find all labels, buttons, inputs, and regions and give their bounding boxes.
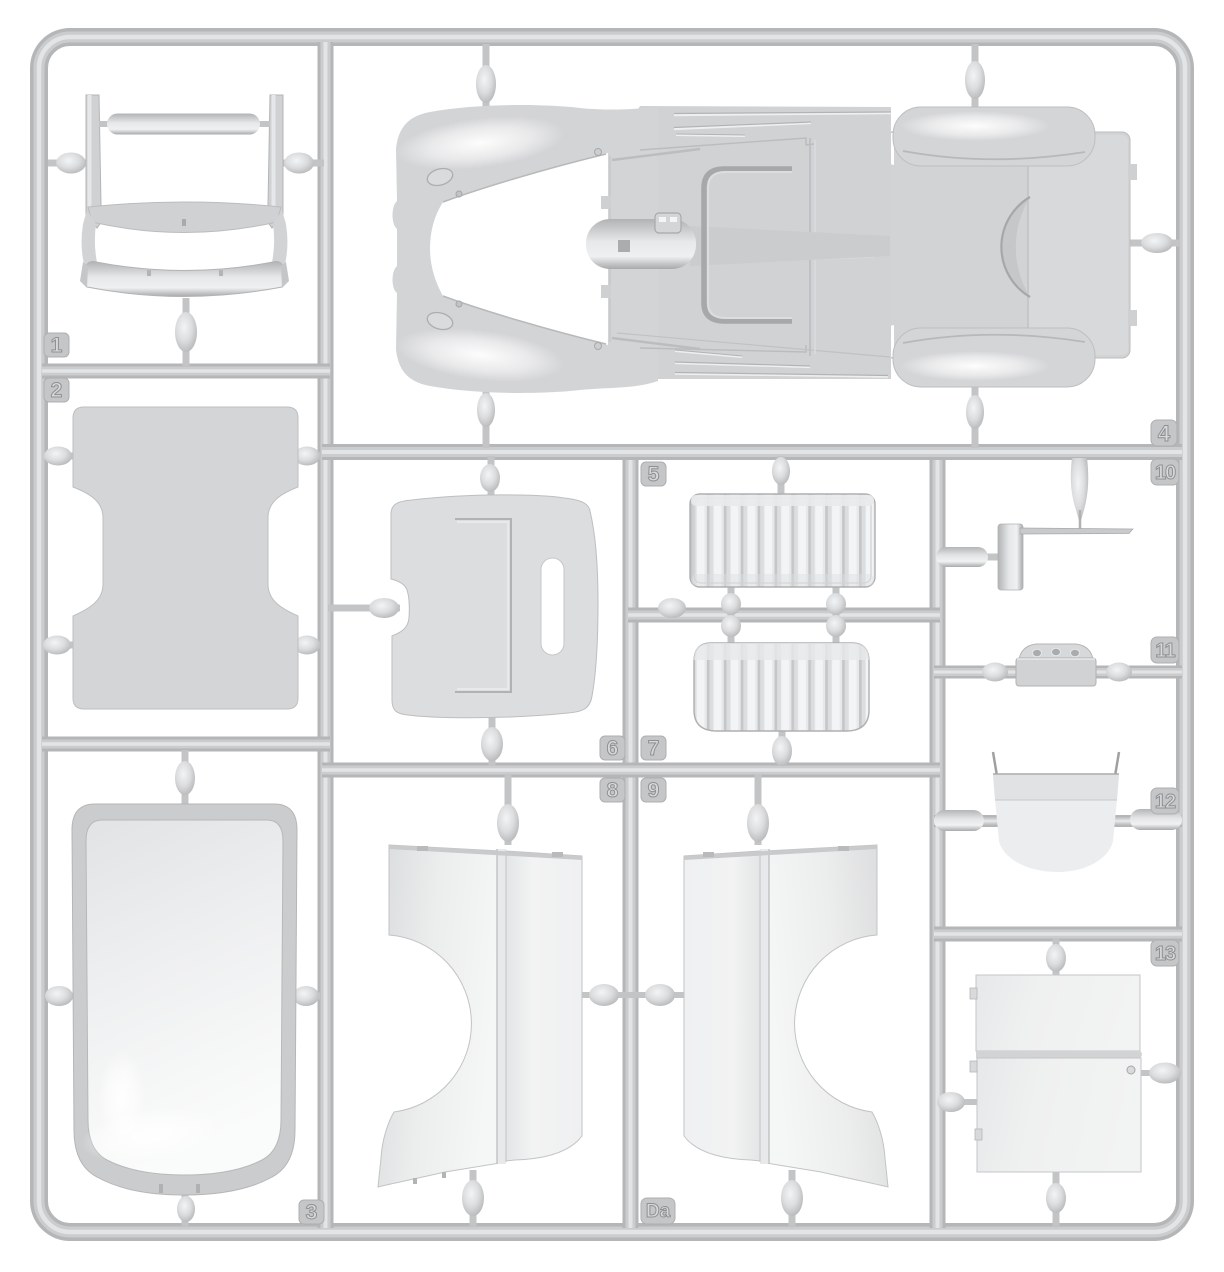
svg-text:13: 13 bbox=[1155, 943, 1176, 965]
svg-text:4: 4 bbox=[1158, 421, 1171, 446]
svg-text:12: 12 bbox=[1155, 791, 1176, 813]
svg-text:9: 9 bbox=[648, 779, 660, 802]
svg-text:2: 2 bbox=[51, 379, 63, 402]
svg-text:5: 5 bbox=[648, 463, 660, 486]
svg-text:11: 11 bbox=[1155, 640, 1175, 662]
svg-text:8: 8 bbox=[607, 779, 619, 802]
svg-text:10: 10 bbox=[1155, 462, 1176, 484]
svg-text:3: 3 bbox=[306, 1201, 318, 1224]
svg-text:Da: Da bbox=[646, 1201, 671, 1222]
svg-text:1: 1 bbox=[51, 334, 63, 357]
svg-text:7: 7 bbox=[648, 737, 660, 760]
svg-text:6: 6 bbox=[607, 737, 619, 760]
